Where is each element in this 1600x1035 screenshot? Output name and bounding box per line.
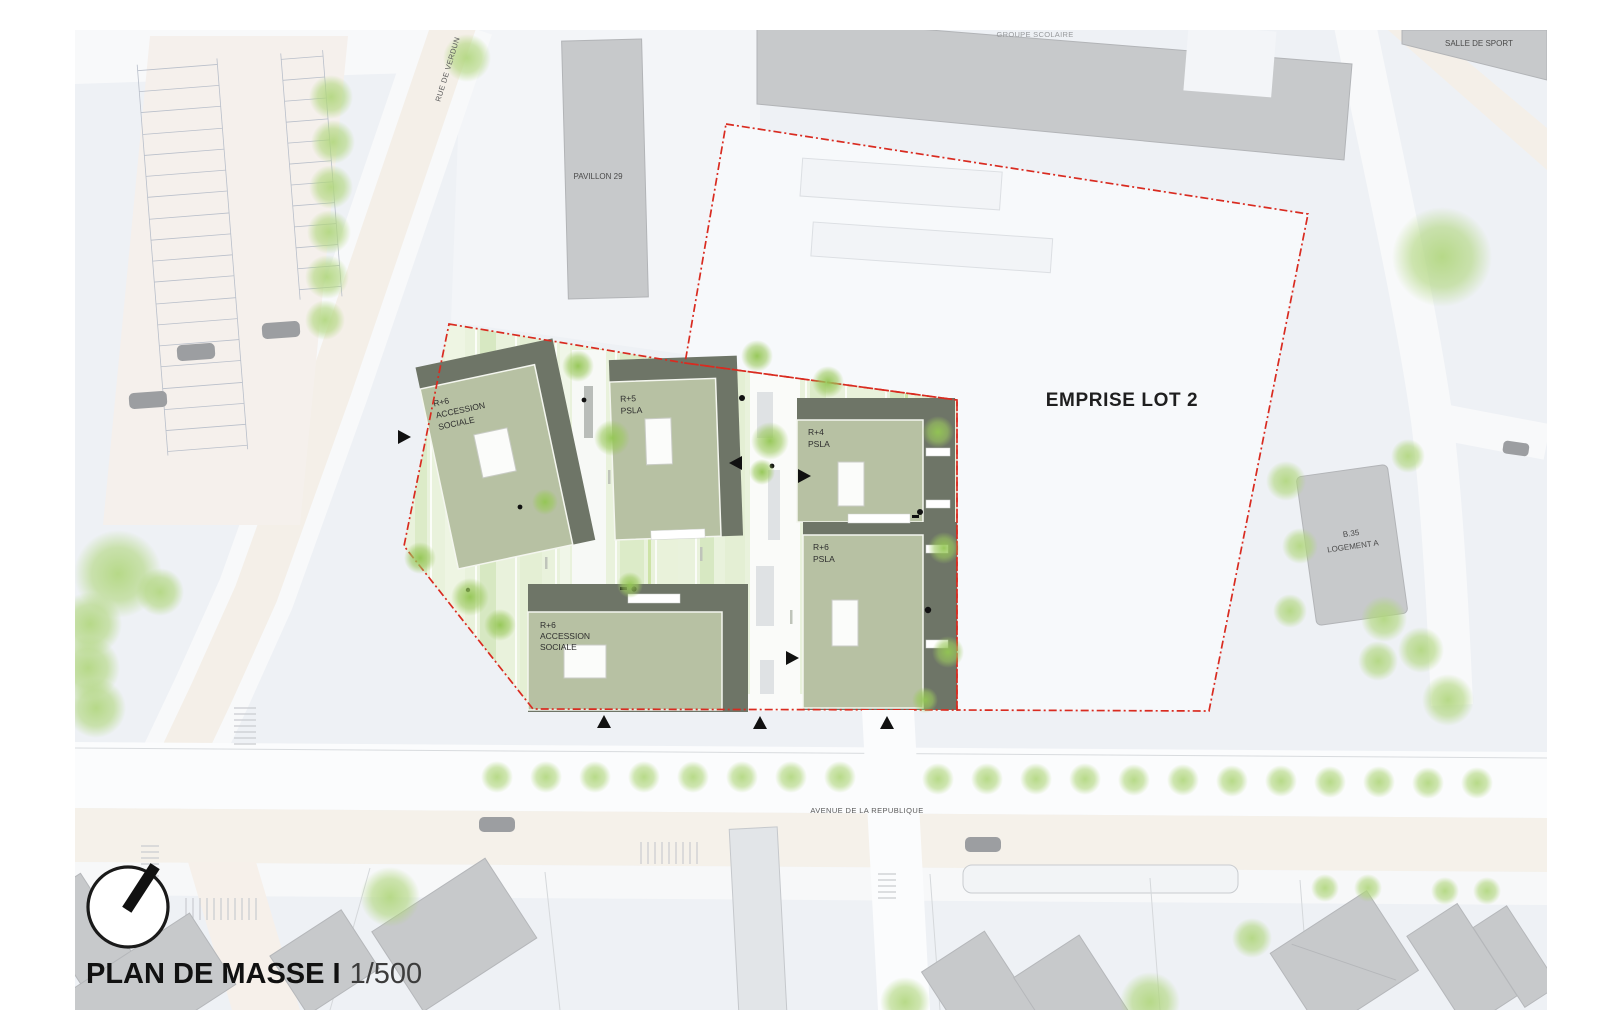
car bbox=[965, 837, 1001, 852]
pavilion-building bbox=[562, 39, 649, 299]
median-planter bbox=[963, 865, 1238, 893]
building-b: R+5 PSLA bbox=[609, 356, 743, 541]
svg-text:PSLA: PSLA bbox=[808, 439, 830, 449]
svg-text:SOCIALE: SOCIALE bbox=[540, 642, 577, 652]
svg-text:ACCESSION: ACCESSION bbox=[540, 631, 590, 641]
building-e-label: R+6 bbox=[540, 620, 556, 630]
car bbox=[479, 817, 515, 832]
page: R+6 ACCESSION SOCIALE R+5 PSLA R+4 PSLA bbox=[0, 0, 1600, 1035]
school-notch bbox=[1183, 25, 1276, 98]
skylight bbox=[645, 418, 673, 465]
street-label-avenue: AVENUE DE LA REPUBLIQUE bbox=[810, 806, 923, 815]
skylight bbox=[832, 600, 858, 646]
building-c-label: R+4 bbox=[808, 427, 824, 437]
building-c: R+4 PSLA bbox=[797, 398, 955, 522]
sports-hall-label: SALLE DE SPORT bbox=[1445, 39, 1513, 48]
lot2-label: EMPRISE LOT 2 bbox=[1046, 390, 1198, 411]
building-e: R+6 ACCESSION SOCIALE bbox=[528, 584, 748, 712]
svg-text:PSLA: PSLA bbox=[620, 405, 642, 416]
plan-title: PLAN DE MASSE I1/500 bbox=[86, 958, 422, 990]
building-b-label: R+5 bbox=[620, 393, 636, 404]
school-label: GROUPE SCOLAIRE bbox=[996, 30, 1073, 39]
site-plan-canvas: R+6 ACCESSION SOCIALE R+5 PSLA R+4 PSLA bbox=[0, 0, 1600, 1035]
building-d-label: R+6 bbox=[813, 542, 829, 552]
skylight bbox=[838, 462, 864, 506]
pavilion-label: PAVILLON 29 bbox=[573, 172, 623, 181]
svg-text:PSLA: PSLA bbox=[813, 554, 835, 564]
